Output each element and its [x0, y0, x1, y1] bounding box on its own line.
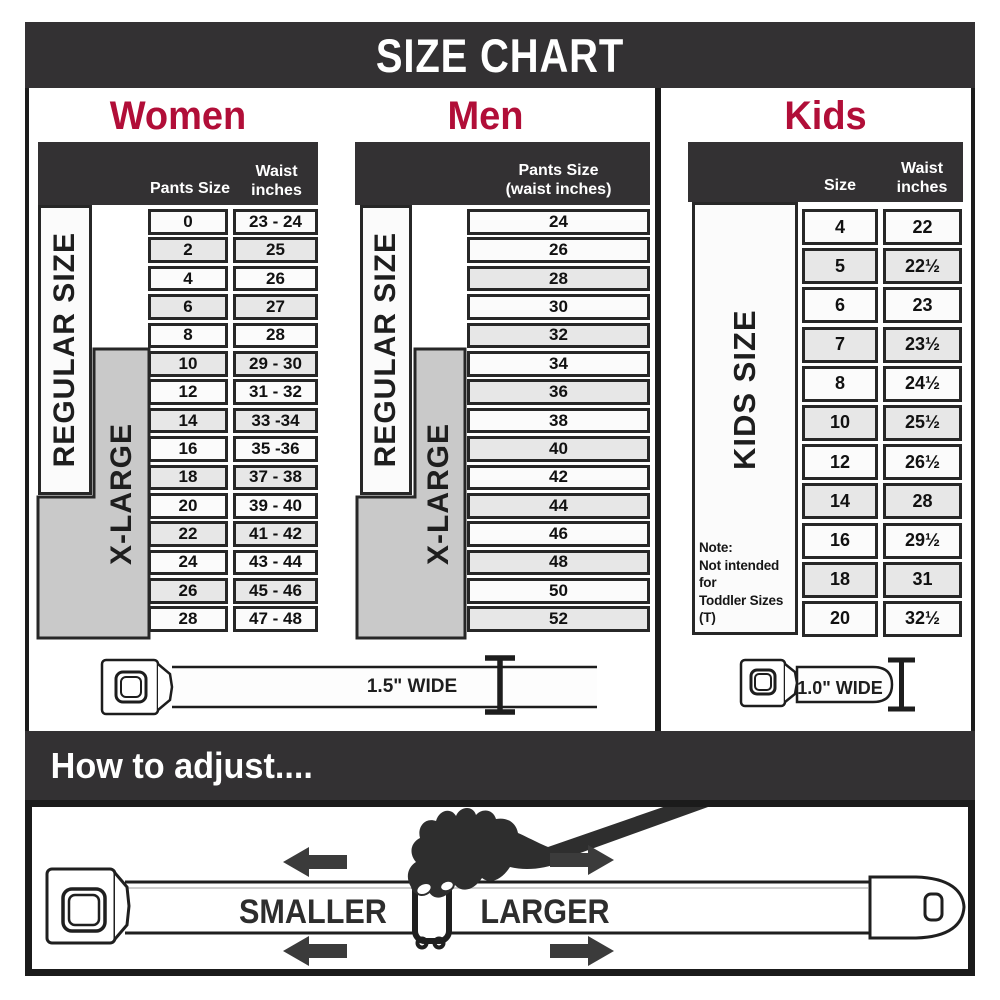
table-cell: 22	[148, 521, 228, 547]
table-cell: 26	[467, 237, 650, 263]
table-cell: 38	[467, 408, 650, 434]
table-cell: 16	[802, 523, 878, 559]
kids-title: Kids	[695, 94, 956, 139]
men-xlarge-box: X-LARGE	[413, 350, 465, 638]
table-row: 38	[467, 408, 650, 434]
table-row: 426	[148, 266, 318, 292]
kids-col-waist: Waist inches	[882, 160, 962, 197]
smaller-label: SMALLER	[239, 893, 383, 932]
arrow-left-icon	[283, 936, 347, 966]
table-row: 1837 - 38	[148, 465, 318, 491]
table-cell: 24½	[883, 366, 962, 402]
table-cell: 10	[148, 351, 228, 377]
table-row: 1226½	[802, 444, 962, 480]
table-row: 522½	[802, 248, 962, 284]
table-cell: 6	[802, 287, 878, 323]
table-cell: 34	[467, 351, 650, 377]
table-cell: 18	[148, 465, 228, 491]
seatbelt-buckle-icon	[47, 869, 129, 943]
table-row: 225	[148, 237, 318, 263]
table-cell: 14	[802, 483, 878, 519]
women-table-rows: 023 - 242254266278281029 - 301231 - 3214…	[148, 205, 318, 635]
table-cell: 24	[148, 550, 228, 576]
size-chart-infographic: SIZE CHART Women Men Kids Pants Size Wai…	[0, 0, 1000, 1000]
kids-note: Note: Not intended for Toddler Sizes (T)	[699, 539, 799, 627]
kids-note-line3: Toddler Sizes (T)	[699, 592, 799, 627]
table-cell: 25	[233, 237, 318, 263]
table-row: 1025½	[802, 405, 962, 441]
kids-size-box: KIDS SIZE Note: Not intended for Toddler…	[692, 202, 798, 635]
table-cell: 29½	[883, 523, 962, 559]
table-cell: 29 - 30	[233, 351, 318, 377]
panel-left-border	[25, 88, 29, 731]
panel-right-border	[971, 88, 975, 731]
kids-col-size: Size	[802, 177, 878, 195]
table-row: 46	[467, 521, 650, 547]
men-title: Men	[364, 94, 606, 139]
table-cell: 20	[802, 601, 878, 637]
table-row: 023 - 24	[148, 209, 318, 235]
table-row: 422	[802, 209, 962, 245]
table-row: 52	[467, 606, 650, 632]
adult-belt-illustration	[80, 650, 600, 725]
kids-size-label: KIDS SIZE	[695, 225, 795, 555]
kids-table-rows: 422522½623723½824½1025½1226½14281629½183…	[802, 205, 962, 640]
table-cell: 48	[467, 550, 650, 576]
table-row: 2443 - 44	[148, 550, 318, 576]
table-row: 2032½	[802, 601, 962, 637]
table-cell: 26	[233, 266, 318, 292]
table-cell: 52	[467, 606, 650, 632]
table-cell: 25½	[883, 405, 962, 441]
table-cell: 7	[802, 327, 878, 363]
table-row: 1635 -36	[148, 436, 318, 462]
table-cell: 35 -36	[233, 436, 318, 462]
table-row: 40	[467, 436, 650, 462]
table-cell: 32½	[883, 601, 962, 637]
table-cell: 36	[467, 379, 650, 405]
panel-divider	[655, 88, 661, 731]
kids-table-header: Size Waist inches	[688, 142, 963, 202]
table-cell: 31 - 32	[233, 379, 318, 405]
table-cell: 6	[148, 294, 228, 320]
men-table-header: Pants Size (waist inches)	[355, 142, 650, 205]
table-cell: 28	[883, 483, 962, 519]
women-col-waist: Waist inches	[235, 163, 318, 200]
women-col-pants-size: Pants Size	[146, 180, 234, 198]
table-cell: 28	[467, 266, 650, 292]
table-cell: 43 - 44	[233, 550, 318, 576]
table-row: 1433 -34	[148, 408, 318, 434]
kids-note-line1: Note:	[699, 539, 799, 557]
men-table-rows: 242628303234363840424446485052	[467, 205, 650, 635]
table-row: 1029 - 30	[148, 351, 318, 377]
table-row: 1428	[802, 483, 962, 519]
table-cell: 40	[467, 436, 650, 462]
table-cell: 18	[802, 562, 878, 598]
table-row: 627	[148, 294, 318, 320]
table-cell: 4	[148, 266, 228, 292]
table-row: 2039 - 40	[148, 493, 318, 519]
table-row: 1831	[802, 562, 962, 598]
adjust-heading: How to adjust....	[25, 731, 928, 800]
women-title: Women	[45, 94, 311, 139]
table-cell: 14	[148, 408, 228, 434]
table-row: 2847 - 48	[148, 606, 318, 632]
table-cell: 31	[883, 562, 962, 598]
table-cell: 39 - 40	[233, 493, 318, 519]
belt-tip	[870, 877, 964, 938]
table-cell: 27	[233, 294, 318, 320]
table-cell: 30	[467, 294, 650, 320]
table-row: 36	[467, 379, 650, 405]
table-cell: 10	[802, 405, 878, 441]
table-row: 2241 - 42	[148, 521, 318, 547]
arrow-right-icon	[550, 936, 614, 966]
table-cell: 12	[148, 379, 228, 405]
table-cell: 2	[148, 237, 228, 263]
men-xlarge-label: X-LARGE	[422, 423, 456, 565]
table-cell: 50	[467, 578, 650, 604]
table-cell: 20	[148, 493, 228, 519]
table-cell: 37 - 38	[233, 465, 318, 491]
men-col-pants-size: Pants Size (waist inches)	[467, 162, 650, 199]
table-cell: 8	[148, 323, 228, 349]
title-bar: SIZE CHART	[25, 22, 975, 88]
table-row: 1629½	[802, 523, 962, 559]
table-cell: 24	[467, 209, 650, 235]
table-cell: 22½	[883, 248, 962, 284]
table-cell: 44	[467, 493, 650, 519]
table-cell: 26½	[883, 444, 962, 480]
table-row: 824½	[802, 366, 962, 402]
table-cell: 16	[148, 436, 228, 462]
table-cell: 0	[148, 209, 228, 235]
kids-belt-width-label: 1.0" WIDE	[780, 678, 900, 699]
table-cell: 5	[802, 248, 878, 284]
table-cell: 28	[148, 606, 228, 632]
table-cell: 32	[467, 323, 650, 349]
table-cell: 12	[802, 444, 878, 480]
table-row: 2645 - 46	[148, 578, 318, 604]
table-cell: 46	[467, 521, 650, 547]
women-xlarge-label: X-LARGE	[105, 423, 139, 565]
table-cell: 41 - 42	[233, 521, 318, 547]
table-row: 34	[467, 351, 650, 377]
seatbelt-buckle-icon	[102, 660, 172, 714]
table-row: 28	[467, 266, 650, 292]
adjust-section-bar: How to adjust....	[25, 731, 975, 800]
table-row: 723½	[802, 327, 962, 363]
table-cell: 45 - 46	[233, 578, 318, 604]
table-cell: 4	[802, 209, 878, 245]
table-row: 623	[802, 287, 962, 323]
table-cell: 23	[883, 287, 962, 323]
table-row: 26	[467, 237, 650, 263]
table-cell: 33 -34	[233, 408, 318, 434]
table-cell: 42	[467, 465, 650, 491]
table-cell: 23½	[883, 327, 962, 363]
table-row: 50	[467, 578, 650, 604]
table-row: 828	[148, 323, 318, 349]
table-cell: 8	[802, 366, 878, 402]
page-title: SIZE CHART	[96, 22, 904, 88]
table-cell: 47 - 48	[233, 606, 318, 632]
women-table-header: Pants Size Waist inches	[38, 142, 318, 205]
arrow-left-icon	[283, 847, 347, 877]
table-cell: 28	[233, 323, 318, 349]
women-xlarge-box: X-LARGE	[94, 350, 150, 638]
table-row: 24	[467, 209, 650, 235]
table-row: 30	[467, 294, 650, 320]
table-cell: 26	[148, 578, 228, 604]
adult-belt-width-label: 1.5" WIDE	[352, 676, 472, 698]
table-row: 48	[467, 550, 650, 576]
table-row: 42	[467, 465, 650, 491]
adjust-belt-illustration	[32, 807, 968, 969]
table-row: 44	[467, 493, 650, 519]
table-cell: 22	[883, 209, 962, 245]
table-row: 32	[467, 323, 650, 349]
larger-label: LARGER	[473, 893, 617, 932]
table-row: 1231 - 32	[148, 379, 318, 405]
kids-note-line2: Not intended for	[699, 557, 799, 592]
table-cell: 23 - 24	[233, 209, 318, 235]
